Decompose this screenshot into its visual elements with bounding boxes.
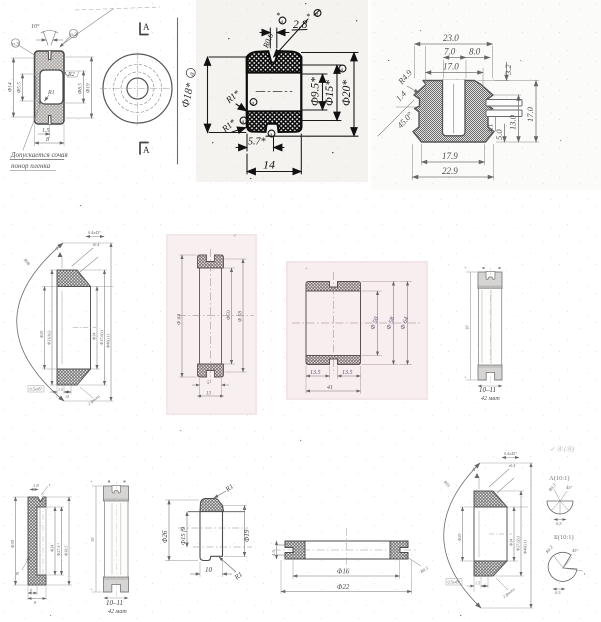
svg-text:42 мат: 42 мат bbox=[108, 608, 127, 615]
svg-text:a: a bbox=[252, 101, 255, 107]
svg-text:+: + bbox=[90, 480, 93, 485]
svg-text:n.3: n.3 bbox=[12, 42, 19, 48]
svg-text:17.0: 17.0 bbox=[525, 106, 535, 122]
svg-text:22.9: 22.9 bbox=[442, 166, 458, 176]
svg-text:Φ15 f9: Φ15 f9 bbox=[180, 526, 187, 545]
svg-text:1.5: 1.5 bbox=[58, 387, 63, 392]
svg-text:R1: R1 bbox=[47, 90, 55, 96]
svg-text:Φ37.6(s): Φ37.6(s) bbox=[516, 535, 521, 551]
svg-text:Φ27.4·¹: Φ27.4·¹ bbox=[56, 542, 61, 556]
svg-text:Φ37.6(s): Φ37.6(s) bbox=[99, 329, 104, 345]
svg-text:1.5: 1.5 bbox=[475, 581, 480, 586]
svg-text:n.3: n.3 bbox=[70, 32, 77, 38]
svg-text:R: R bbox=[15, 571, 19, 576]
svg-text:23.0: 23.0 bbox=[443, 33, 459, 43]
svg-text:*: * bbox=[276, 11, 280, 20]
svg-text:38: 38 bbox=[90, 537, 95, 542]
svg-text:a: a bbox=[341, 67, 344, 73]
svg-text:+: + bbox=[464, 266, 467, 271]
svg-text:0.4x45°: 0.4x45° bbox=[504, 451, 517, 456]
svg-text:Φ16: Φ16 bbox=[337, 568, 350, 576]
svg-text:✓ Ⓐ (Ⓐ): ✓ Ⓐ (Ⓐ) bbox=[550, 445, 574, 453]
svg-text:13: 13 bbox=[206, 392, 212, 397]
svg-text:10–11: 10–11 bbox=[479, 386, 496, 394]
svg-text:13.5: 13.5 bbox=[342, 370, 353, 376]
svg-text:Φ15*: Φ15* bbox=[324, 80, 336, 106]
svg-text:a: a bbox=[242, 119, 245, 125]
svg-text:Φ29: Φ29 bbox=[39, 330, 44, 338]
svg-text:10°: 10° bbox=[31, 23, 40, 30]
svg-text:Φ22: Φ22 bbox=[337, 583, 350, 591]
svg-text:Φ34: Φ34 bbox=[509, 539, 514, 546]
svg-text:Φ26: Φ26 bbox=[161, 530, 169, 543]
svg-text:8.0: 8.0 bbox=[469, 47, 481, 57]
svg-text:4.5: 4.5 bbox=[271, 550, 276, 556]
svg-text:Φ31(h1): Φ31(h1) bbox=[47, 330, 52, 345]
svg-text:14: 14 bbox=[263, 158, 275, 172]
svg-text:45°: 45° bbox=[572, 548, 579, 553]
svg-text:5.7*: 5.7* bbox=[248, 137, 266, 148]
svg-text:Φ5.5: Φ5.5 bbox=[17, 82, 23, 93]
svg-text:0.5: 0.5 bbox=[556, 521, 562, 526]
svg-text:42 мат: 42 мат bbox=[481, 395, 500, 402]
svg-text:Φ50: Φ50 bbox=[226, 310, 232, 320]
svg-text:✓: ✓ bbox=[233, 233, 237, 239]
svg-text:a: a bbox=[270, 132, 273, 138]
svg-text:A(10:1): A(10:1) bbox=[549, 475, 570, 482]
svg-text:Φ19: Φ19 bbox=[243, 529, 251, 542]
svg-text:17.0: 17.0 bbox=[443, 62, 459, 72]
svg-text:0.5x45°: 0.5x45° bbox=[30, 387, 43, 392]
svg-text:Φ40(s1): Φ40(s1) bbox=[523, 540, 528, 554]
svg-text:45°: 45° bbox=[566, 485, 573, 490]
svg-text:8: 8 bbox=[46, 137, 49, 143]
svg-text:0.4x45°: 0.4x45° bbox=[88, 230, 101, 235]
svg-text:+: + bbox=[305, 267, 308, 272]
svg-text:0.5x45°: 0.5x45° bbox=[448, 580, 461, 585]
svg-text:A: A bbox=[143, 22, 150, 32]
svg-text:Φ34: Φ34 bbox=[92, 333, 97, 340]
svg-text:понор пленка: понор пленка bbox=[11, 162, 51, 170]
svg-text:4.1: 4.1 bbox=[486, 124, 495, 133]
svg-text:a: a bbox=[281, 19, 284, 25]
svg-text:Допускается сочая: Допускается сочая bbox=[10, 151, 68, 159]
svg-text:A: A bbox=[143, 145, 150, 155]
svg-text:10–11: 10–11 bbox=[106, 599, 123, 607]
svg-text:Φ30: Φ30 bbox=[10, 539, 15, 548]
svg-text:Б(10:1): Б(10:1) bbox=[554, 534, 574, 541]
svg-text:17.9: 17.9 bbox=[442, 151, 458, 161]
svg-text:1.5: 1.5 bbox=[42, 128, 50, 134]
svg-text:Φ8.5: Φ8.5 bbox=[78, 83, 84, 94]
svg-text:7.0: 7.0 bbox=[444, 47, 456, 57]
svg-text:13.5: 13.5 bbox=[310, 370, 321, 376]
svg-text:Φ14: Φ14 bbox=[7, 82, 14, 92]
svg-text:t0.4: t0.4 bbox=[93, 242, 99, 247]
svg-text:0.5: 0.5 bbox=[555, 590, 561, 595]
svg-text:3.2: 3.2 bbox=[503, 64, 513, 76]
svg-text:38: 38 bbox=[465, 325, 470, 330]
svg-text:13.0: 13.0 bbox=[508, 114, 518, 130]
svg-text:+: + bbox=[464, 376, 467, 381]
svg-text:10: 10 bbox=[205, 566, 213, 574]
svg-text:Φ9.5*: Φ9.5* bbox=[310, 77, 322, 106]
svg-text:t0.4: t0.4 bbox=[509, 463, 515, 468]
svg-text:+: + bbox=[90, 588, 93, 593]
svg-text:Φ30.5: Φ30.5 bbox=[64, 545, 69, 556]
svg-text:41: 41 bbox=[327, 384, 333, 391]
svg-text:1.8: 1.8 bbox=[33, 483, 39, 488]
svg-text:Φ19: Φ19 bbox=[86, 83, 92, 93]
svg-text:Φ 58: Φ 58 bbox=[238, 311, 244, 322]
svg-text:Φ40(s1): Φ40(s1) bbox=[106, 334, 111, 348]
svg-text:Φ24: Φ24 bbox=[50, 545, 55, 552]
svg-text:10: 10 bbox=[65, 394, 69, 399]
svg-text:Φ 64: Φ 64 bbox=[176, 314, 183, 325]
svg-text:Φ29: Φ29 bbox=[457, 533, 462, 541]
svg-text:Φ20*: Φ20* bbox=[341, 80, 353, 106]
